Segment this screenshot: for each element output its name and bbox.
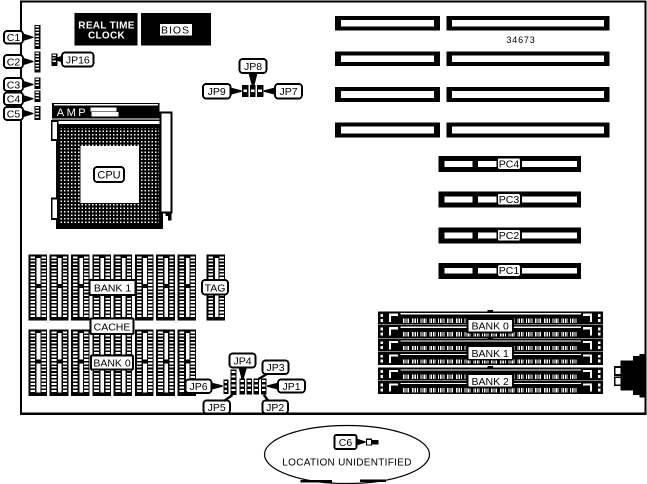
- svg-text:JP8: JP8: [244, 61, 262, 73]
- svg-text:TAG: TAG: [205, 282, 226, 294]
- svg-text:JP1: JP1: [282, 381, 300, 393]
- svg-text:JP9: JP9: [208, 86, 226, 98]
- svg-text:AMP: AMP: [57, 107, 88, 119]
- svg-text:JP4: JP4: [233, 355, 251, 367]
- svg-text:BANK 2: BANK 2: [472, 376, 510, 388]
- svg-text:BIOS: BIOS: [161, 25, 190, 37]
- svg-text:CLOCK: CLOCK: [88, 31, 126, 42]
- svg-text:34673: 34673: [506, 35, 535, 45]
- svg-text:PC4: PC4: [499, 158, 520, 170]
- svg-text:C5: C5: [7, 108, 21, 120]
- svg-text:C4: C4: [7, 94, 21, 106]
- svg-text:JP5: JP5: [208, 402, 226, 414]
- svg-text:CACHE: CACHE: [94, 321, 131, 333]
- svg-text:PC3: PC3: [499, 194, 520, 206]
- svg-text:JP6: JP6: [189, 381, 207, 393]
- svg-text:JP16: JP16: [66, 54, 90, 66]
- svg-text:C2: C2: [7, 56, 21, 68]
- svg-text:CPU: CPU: [97, 170, 120, 182]
- svg-text:JP2: JP2: [266, 402, 284, 414]
- svg-text:PC2: PC2: [499, 230, 520, 242]
- svg-text:C1: C1: [7, 32, 21, 44]
- svg-text:C3: C3: [7, 79, 21, 91]
- svg-text:BANK 1: BANK 1: [472, 348, 510, 360]
- svg-text:BANK 1: BANK 1: [94, 283, 132, 295]
- svg-text:C6: C6: [339, 437, 353, 449]
- svg-text:JP3: JP3: [266, 362, 284, 374]
- svg-text:PC1: PC1: [499, 265, 520, 277]
- svg-text:BANK 0: BANK 0: [93, 358, 131, 370]
- svg-text:LOCATION UNIDENTIFIED: LOCATION UNIDENTIFIED: [282, 458, 411, 469]
- svg-text:BANK 0: BANK 0: [472, 321, 510, 333]
- svg-text:JP7: JP7: [279, 86, 297, 98]
